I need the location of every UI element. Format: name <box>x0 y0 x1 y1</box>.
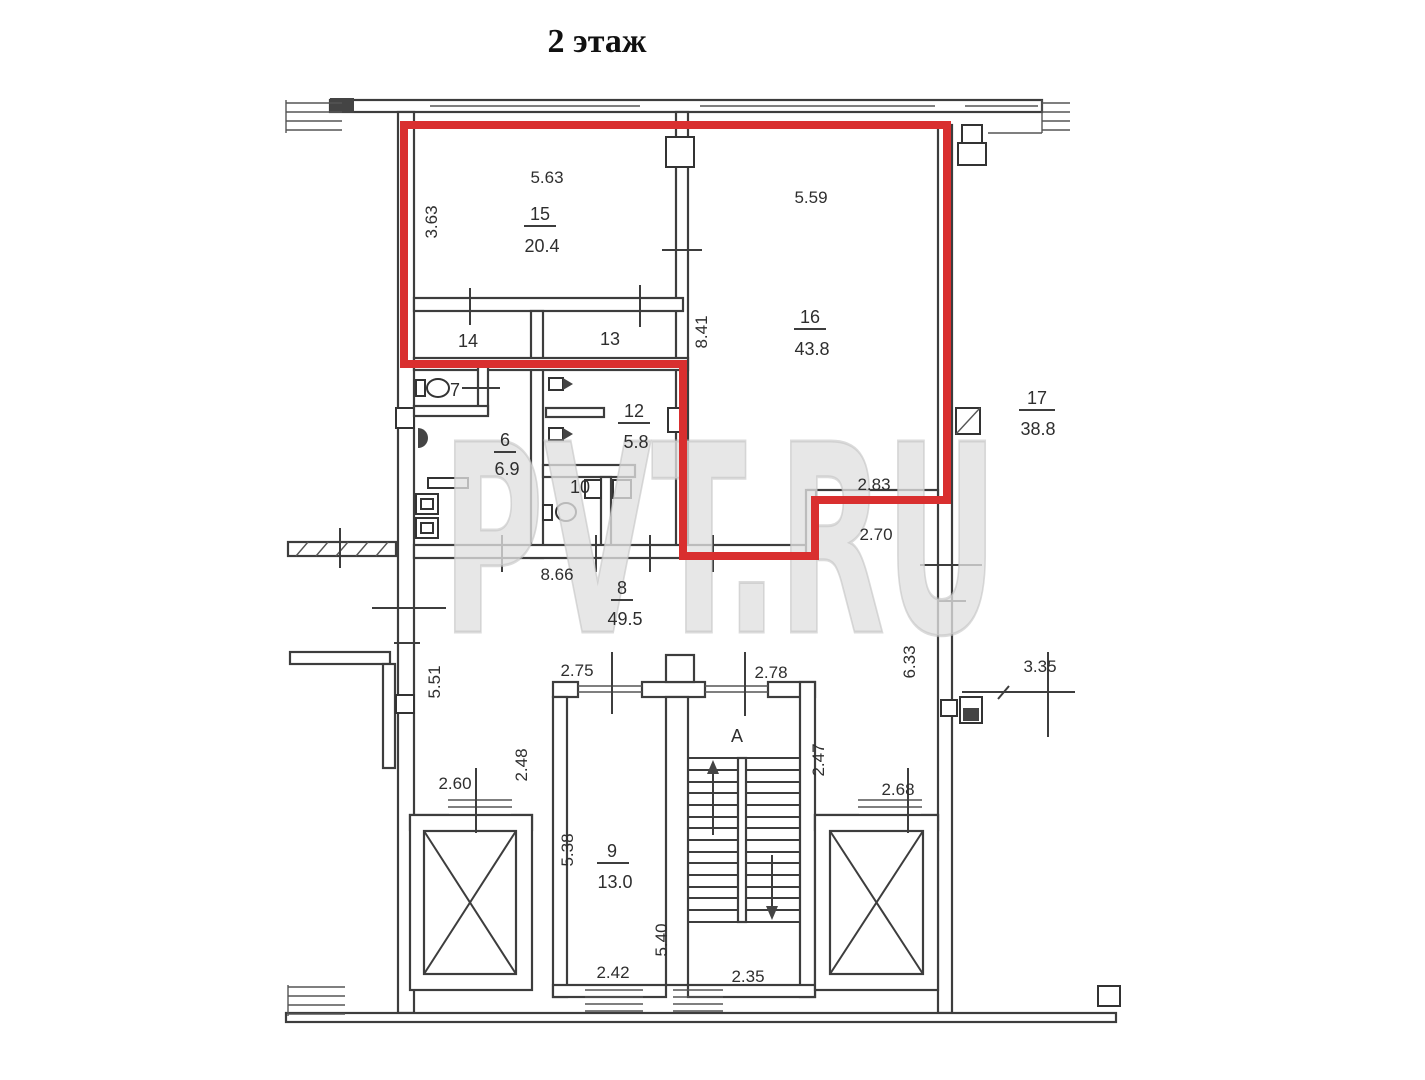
room-6-number: 6 <box>500 430 510 450</box>
dim-3-35: 3.35 <box>1023 657 1056 676</box>
room-17-number: 17 <box>1027 388 1047 408</box>
wall-under-room15 <box>414 298 683 311</box>
dim-2-68: 2.68 <box>881 780 914 799</box>
vent-box-top <box>666 137 694 167</box>
room-12-area: 5.8 <box>623 432 648 452</box>
left-wall-vent-2 <box>396 695 414 713</box>
room-12-number: 12 <box>624 401 644 421</box>
floor-plan-page: 2 этаж <box>0 0 1425 1080</box>
stair-arrow-down-head <box>766 906 778 920</box>
left-wall-vent <box>396 408 414 428</box>
left-wall-stubs <box>288 408 446 768</box>
dim-5-63: 5.63 <box>530 168 563 187</box>
dim-2-78: 2.78 <box>754 663 787 682</box>
dim-2-83: 2.83 <box>857 475 890 494</box>
stair-stringer <box>738 758 746 922</box>
dim-2-75: 2.75 <box>560 661 593 680</box>
room-6-area: 6.9 <box>494 459 519 479</box>
dim-8-66: 8.66 <box>540 565 573 584</box>
floor-plan-drawing: 2 этаж <box>0 0 1425 1080</box>
dim-2-47: 2.47 <box>809 743 828 776</box>
bottom-wall <box>286 1013 1116 1022</box>
room9-bottom-wall <box>553 985 666 997</box>
room-10-number: 10 <box>570 477 590 497</box>
room-16-number: 16 <box>800 307 820 327</box>
room-15-number: 15 <box>530 204 550 224</box>
room-8-area: 49.5 <box>607 609 642 629</box>
dim-5-59: 5.59 <box>794 188 827 207</box>
dim-5-40: 5.40 <box>652 923 671 956</box>
stair-arrow-up-head <box>707 760 719 774</box>
dim-2-35: 2.35 <box>731 967 764 986</box>
dim-2-48: 2.48 <box>512 748 531 781</box>
toilet-7-tank <box>416 380 425 396</box>
dim-2-60: 2.60 <box>438 774 471 793</box>
staircase <box>688 758 800 922</box>
stair-right-wall <box>800 682 815 997</box>
room-13-number: 13 <box>600 329 620 349</box>
top-wall-pier <box>330 98 354 113</box>
stair-bottom-wall <box>688 985 815 997</box>
dim-2-42: 2.42 <box>596 963 629 982</box>
dim-3-63: 3.63 <box>422 205 441 238</box>
core-block <box>553 652 815 997</box>
room-8-number: 8 <box>617 578 627 598</box>
room-16-area: 43.8 <box>794 339 829 359</box>
stairwell-label: А <box>731 726 743 746</box>
room-7-number: 7 <box>450 380 460 400</box>
dim-5-38: 5.38 <box>558 833 577 866</box>
room-9-area: 13.0 <box>597 872 632 892</box>
dim-5-51: 5.51 <box>425 665 444 698</box>
room-15-area: 20.4 <box>524 236 559 256</box>
dim-8-41: 8.41 <box>692 315 711 348</box>
room-14-number: 14 <box>458 331 478 351</box>
page-title: 2 этаж <box>548 23 647 60</box>
appliance-1-inner <box>421 499 433 509</box>
room-17-area: 38.8 <box>1020 419 1055 439</box>
room-9-number: 9 <box>607 841 617 861</box>
dim-6-33: 6.33 <box>900 645 919 678</box>
appliance-2-inner <box>421 523 433 533</box>
dim-2-70: 2.70 <box>859 525 892 544</box>
sink-6 <box>418 428 428 448</box>
